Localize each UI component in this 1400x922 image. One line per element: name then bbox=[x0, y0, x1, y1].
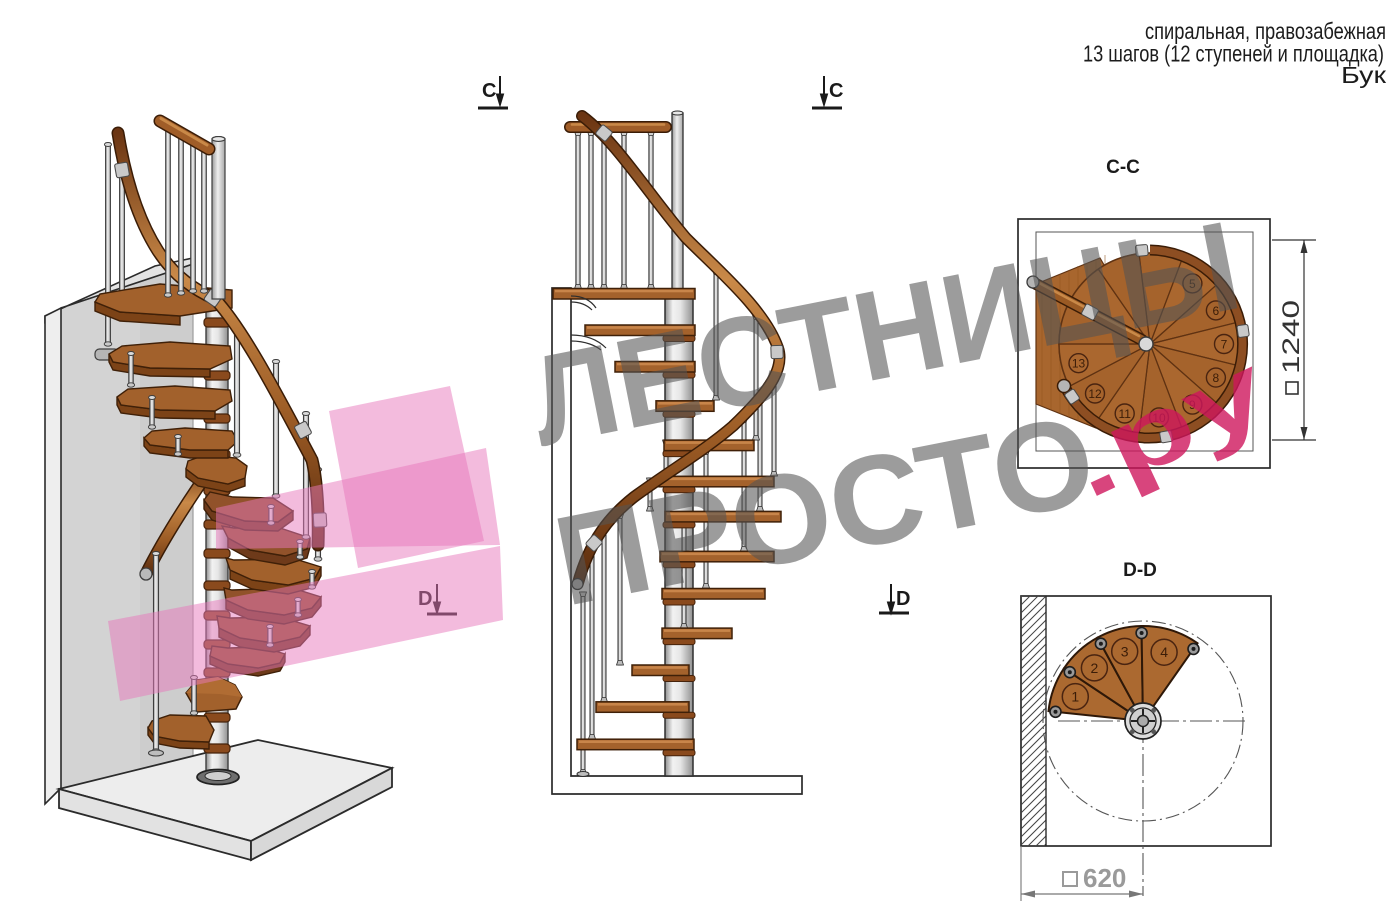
svg-text:3: 3 bbox=[1121, 643, 1129, 659]
svg-text:1: 1 bbox=[1071, 689, 1079, 705]
svg-text:1240: 1240 bbox=[1278, 300, 1305, 374]
svg-text:C: C bbox=[829, 80, 843, 102]
svg-text:D-D: D-D bbox=[1123, 560, 1157, 581]
svg-text:13 шагов (12 ступеней и площад: 13 шагов (12 ступеней и площадка) bbox=[1083, 41, 1384, 67]
svg-text:C: C bbox=[482, 80, 496, 102]
svg-text:620: 620 bbox=[1083, 863, 1126, 893]
svg-text:4: 4 bbox=[1160, 644, 1168, 660]
svg-text:C-C: C-C bbox=[1106, 157, 1140, 178]
svg-text:2: 2 bbox=[1091, 660, 1099, 676]
svg-text:Бук: Бук bbox=[1341, 62, 1387, 88]
svg-text:D: D bbox=[896, 588, 910, 610]
